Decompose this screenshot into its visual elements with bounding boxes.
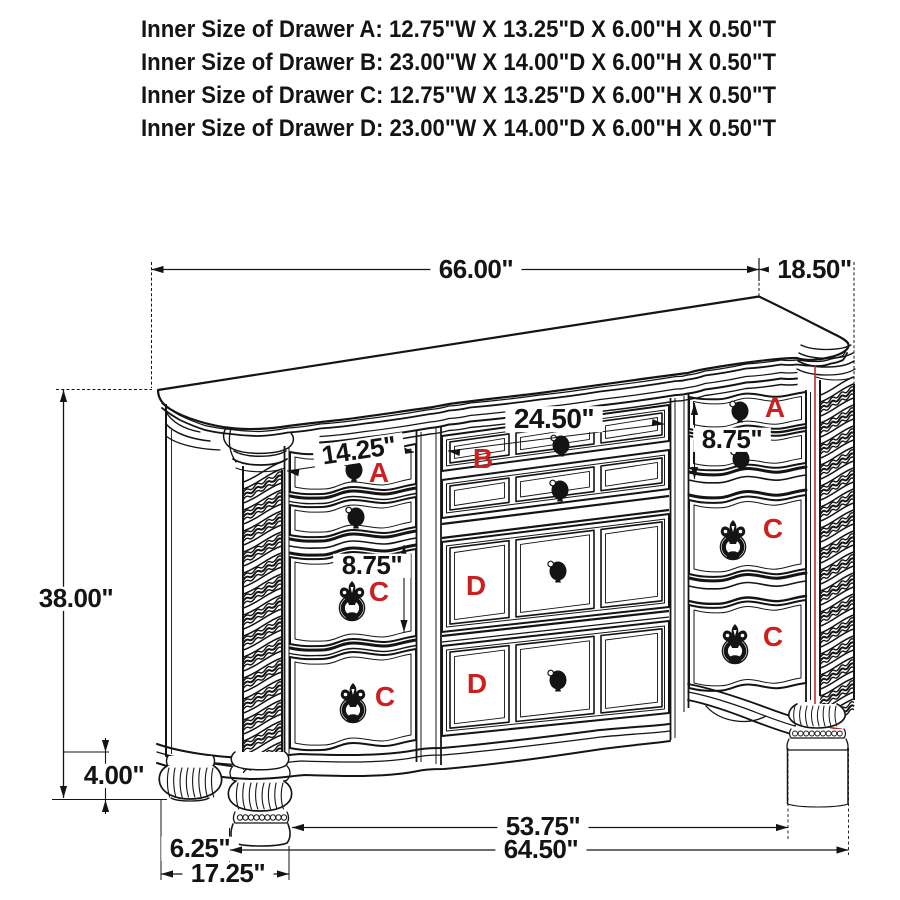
svg-text:Inner Size of Drawer C: 12.75": Inner Size of Drawer C: 12.75"W X 13.25"…: [141, 82, 776, 109]
svg-text:D: D: [466, 570, 486, 601]
svg-text:Inner Size of Drawer A: 12.75": Inner Size of Drawer A: 12.75"W X 13.25"…: [141, 16, 776, 43]
svg-text:A: A: [765, 392, 785, 423]
svg-text:Inner Size of Drawer B: 23.00": Inner Size of Drawer B: 23.00"W X 14.00"…: [141, 49, 776, 76]
svg-text:C: C: [763, 513, 783, 544]
svg-text:C: C: [369, 576, 389, 607]
svg-text:4.00": 4.00": [84, 760, 144, 790]
svg-text:C: C: [763, 621, 783, 652]
svg-text:66.00": 66.00": [439, 254, 513, 284]
svg-text:C: C: [375, 681, 395, 712]
svg-text:8.75": 8.75": [342, 550, 402, 580]
svg-text:38.00": 38.00": [39, 583, 113, 613]
svg-text:24.50": 24.50": [514, 403, 594, 434]
svg-text:18.50": 18.50": [777, 254, 851, 284]
svg-text:53.75": 53.75": [506, 811, 580, 841]
svg-text:D: D: [467, 668, 487, 699]
svg-text:8.75": 8.75": [702, 424, 762, 454]
svg-text:17.25": 17.25": [191, 858, 265, 888]
svg-text:Inner Size of Drawer D: 23.00": Inner Size of Drawer D: 23.00"W X 14.00"…: [141, 115, 776, 142]
